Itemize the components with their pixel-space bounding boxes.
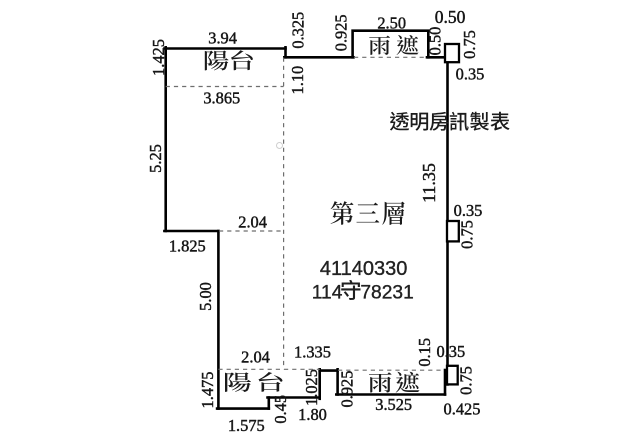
svg-text:5.00: 5.00 <box>196 282 215 311</box>
svg-text:1.825: 1.825 <box>169 237 206 256</box>
svg-text:11.35: 11.35 <box>419 163 439 203</box>
svg-text:0.75: 0.75 <box>457 366 476 395</box>
svg-text:0.925: 0.925 <box>331 14 350 51</box>
svg-text:0.925: 0.925 <box>338 371 357 408</box>
svg-text:0.425: 0.425 <box>444 399 481 418</box>
svg-text:1.10: 1.10 <box>288 66 307 95</box>
svg-text:0.50: 0.50 <box>426 27 445 56</box>
svg-text:1.335: 1.335 <box>294 342 331 361</box>
svg-text:1.575: 1.575 <box>228 416 265 435</box>
svg-text:1.425: 1.425 <box>149 39 168 76</box>
svg-text:3.865: 3.865 <box>203 89 240 108</box>
svg-text:41140330: 41140330 <box>320 258 408 280</box>
svg-text:0.35: 0.35 <box>436 342 465 361</box>
svg-text:114: 114 <box>312 282 343 303</box>
svg-text:0.325: 0.325 <box>288 12 307 49</box>
svg-text:0.35: 0.35 <box>456 64 485 83</box>
svg-text:0.15: 0.15 <box>415 338 434 367</box>
svg-text:1.80: 1.80 <box>298 405 327 424</box>
svg-text:3.525: 3.525 <box>375 395 412 414</box>
svg-text:0.75: 0.75 <box>458 220 477 249</box>
svg-text:0.35: 0.35 <box>454 201 483 220</box>
svg-text:0.45: 0.45 <box>271 395 290 424</box>
svg-text:0.75: 0.75 <box>460 30 479 59</box>
svg-text:5.25: 5.25 <box>146 144 165 173</box>
svg-text:1.025: 1.025 <box>302 369 321 406</box>
svg-text:2.50: 2.50 <box>377 13 406 32</box>
svg-text:0.50: 0.50 <box>435 7 466 27</box>
svg-text:3.94: 3.94 <box>208 28 237 47</box>
svg-text:2.04: 2.04 <box>241 348 270 367</box>
svg-text:2.04: 2.04 <box>238 213 267 232</box>
svg-text:1.475: 1.475 <box>198 372 217 409</box>
svg-text:78231: 78231 <box>360 282 413 303</box>
